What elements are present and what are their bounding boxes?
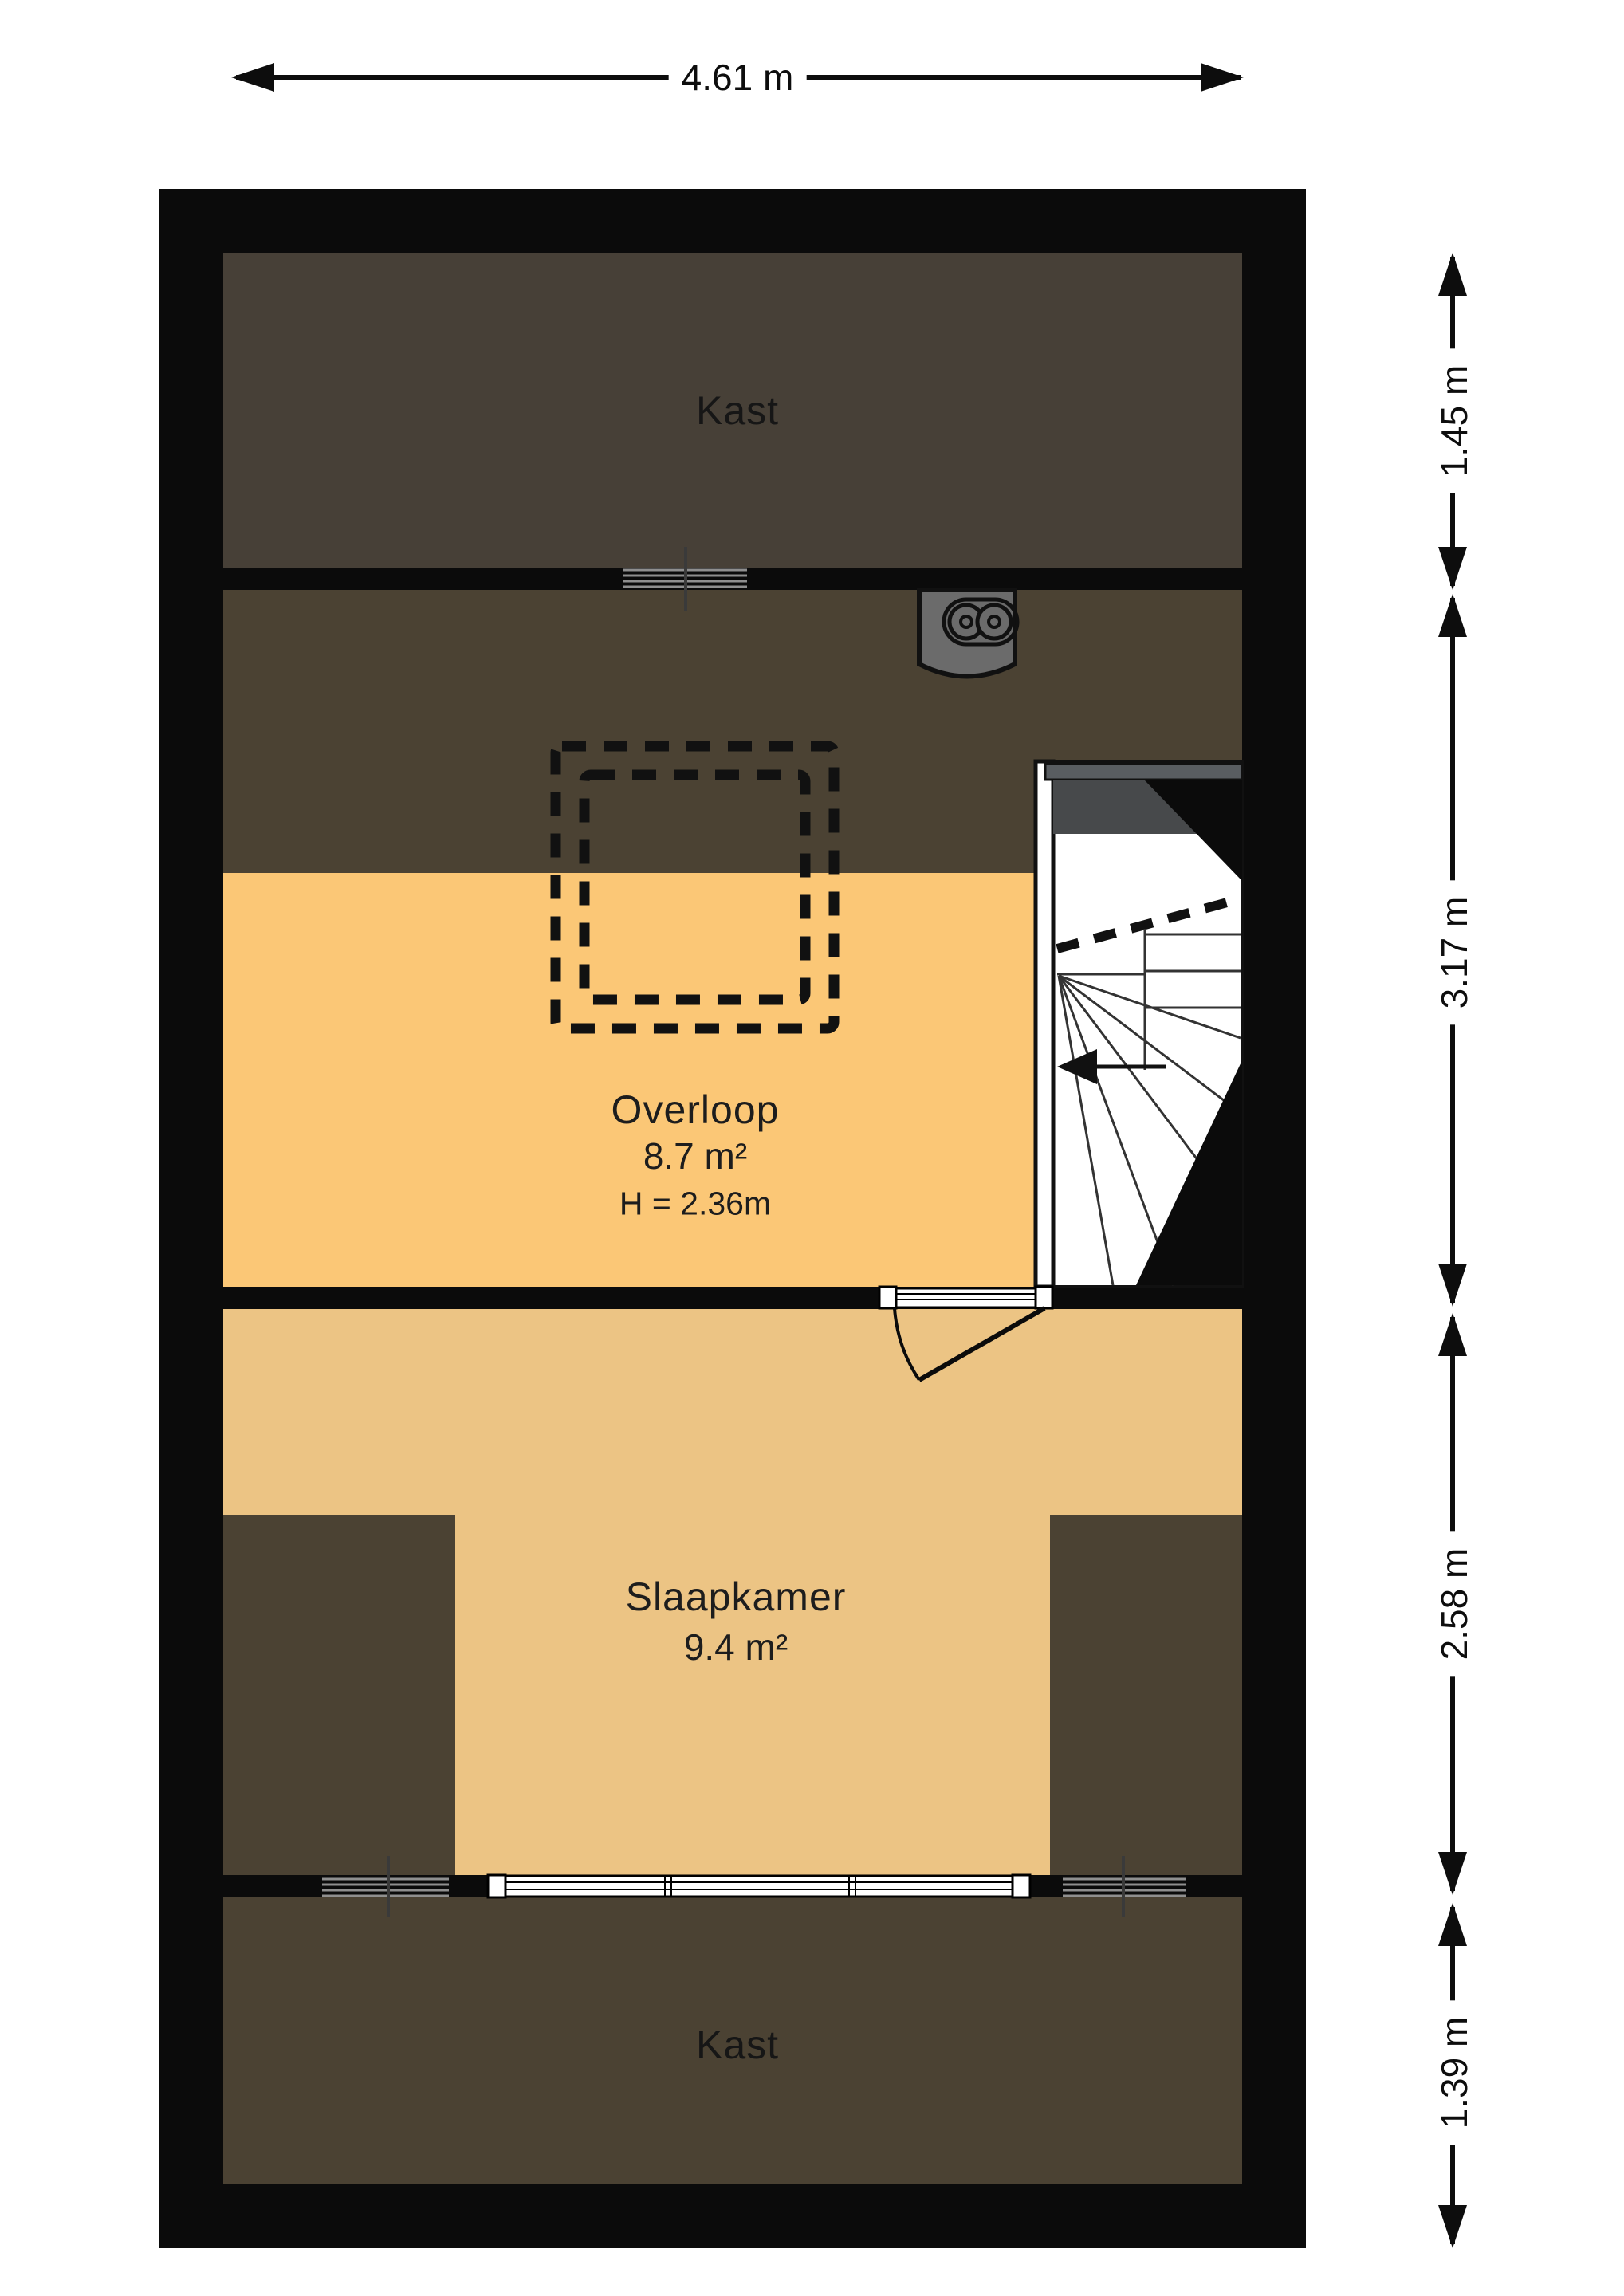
- dimension-label-1: 1.45 m: [1431, 349, 1477, 493]
- floor-plan: 4.61 m 1.45 m 3.17 m 2.58 m 1.39 m Kast …: [0, 0, 1624, 2296]
- room-height-overloop: H = 2.36m: [619, 1185, 771, 1223]
- door-swing-arc: [895, 1308, 919, 1380]
- dimension-label-4: 1.39 m: [1431, 2001, 1477, 2145]
- window-bottom-center: [488, 1875, 1030, 1897]
- hatch-window-top: [623, 547, 747, 611]
- door-leaf: [919, 1308, 1044, 1380]
- room-area-overloop: 8.7 m²: [643, 1134, 747, 1177]
- room-label-kast-top: Kast: [696, 387, 779, 434]
- dashed-void-outline: [556, 746, 834, 1028]
- dimension-label-width: 4.61 m: [669, 54, 807, 100]
- dimension-label-2: 3.17 m: [1431, 881, 1477, 1025]
- door-slaapkamer: [879, 1287, 1052, 1380]
- dimension-line-right: [1438, 253, 1467, 2248]
- room-area-slaapkamer: 9.4 m²: [684, 1626, 788, 1669]
- room-label-slaapkamer: Slaapkamer: [626, 1574, 847, 1620]
- room-label-kast-bottom: Kast: [696, 2022, 779, 2068]
- dimension-label-3: 2.58 m: [1431, 1532, 1477, 1677]
- mechanical-ventilation-icon: [919, 590, 1017, 677]
- staircase: [1036, 761, 1242, 1287]
- window-bottom-left: [322, 1856, 449, 1917]
- plan-linework: [0, 0, 1624, 2296]
- window-bottom-right: [1063, 1856, 1186, 1917]
- room-label-overloop: Overloop: [611, 1087, 780, 1133]
